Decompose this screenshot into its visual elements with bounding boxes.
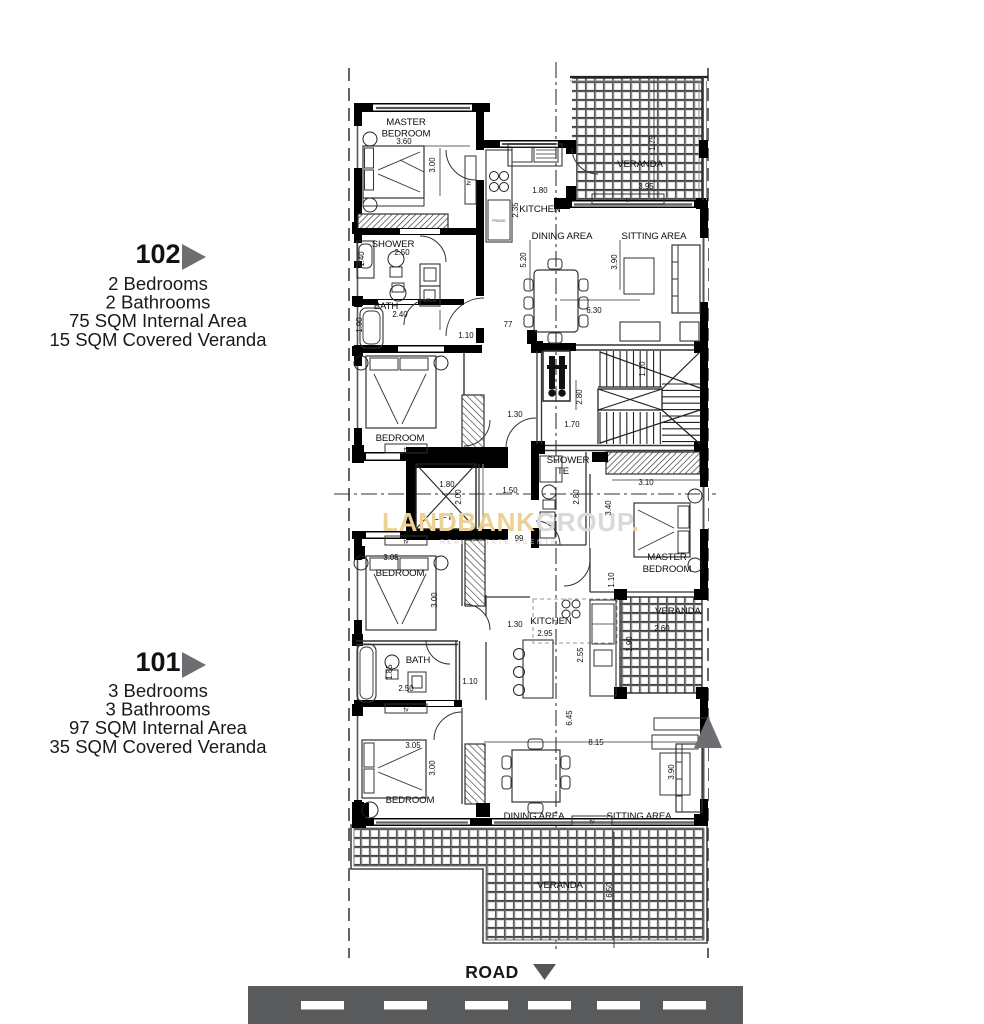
svg-text:BEDROOM: BEDROOM [376, 568, 425, 579]
svg-text:15 SQM Covered Veranda: 15 SQM Covered Veranda [50, 329, 268, 350]
svg-text:BATH: BATH [406, 655, 431, 666]
svg-text:8.15: 8.15 [588, 738, 604, 747]
svg-text:ROAD: ROAD [465, 962, 519, 982]
svg-text:SITTING AREA: SITTING AREA [607, 811, 673, 822]
svg-text:3.05: 3.05 [383, 553, 399, 562]
svg-text:tv: tv [403, 539, 409, 546]
svg-text:1.80: 1.80 [532, 186, 548, 195]
svg-text:1.85: 1.85 [385, 664, 394, 680]
svg-text:VERANDA: VERANDA [617, 159, 663, 170]
svg-text:KITCHEN: KITCHEN [519, 204, 561, 215]
svg-text:BEDROOM: BEDROOM [643, 564, 692, 575]
svg-text:VERANDA: VERANDA [537, 880, 583, 891]
svg-text:5.20: 5.20 [519, 252, 528, 268]
svg-text:1.70: 1.70 [564, 420, 580, 429]
svg-text:1.75: 1.75 [648, 135, 657, 151]
svg-text:2.80: 2.80 [572, 489, 581, 505]
svg-text:BEDROOM: BEDROOM [386, 795, 435, 806]
svg-text:101: 101 [135, 647, 180, 677]
svg-text:1.10: 1.10 [638, 361, 647, 377]
svg-text:6.45: 6.45 [565, 710, 574, 726]
svg-text:35 SQM Covered Veranda: 35 SQM Covered Veranda [50, 736, 268, 757]
svg-text:6.50: 6.50 [605, 882, 614, 898]
svg-text:1.40: 1.40 [357, 251, 366, 267]
svg-text:tv: tv [589, 819, 595, 826]
svg-text:3.00: 3.00 [430, 592, 439, 608]
svg-text:MASTER: MASTER [386, 117, 426, 128]
svg-text:6.30: 6.30 [586, 306, 602, 315]
svg-text:2.00: 2.00 [454, 489, 463, 505]
svg-text:3.90: 3.90 [667, 764, 676, 780]
svg-text:2.55: 2.55 [576, 647, 585, 663]
svg-text:1.80: 1.80 [439, 480, 455, 489]
svg-text:DINING AREA: DINING AREA [504, 811, 565, 822]
svg-text:BEDROOM: BEDROOM [382, 129, 431, 140]
svg-text:KITCHEN: KITCHEN [530, 616, 572, 627]
svg-text:BEDROOM: BEDROOM [376, 433, 425, 444]
svg-text:1.10: 1.10 [607, 572, 616, 588]
svg-text:SHOWER: SHOWER [372, 239, 415, 250]
svg-text:3.10: 3.10 [638, 478, 654, 487]
svg-text:tv: tv [403, 447, 409, 454]
svg-text:MASTER: MASTER [647, 552, 687, 563]
svg-text:DINING AREA: DINING AREA [532, 231, 593, 242]
svg-text:2.60: 2.60 [654, 624, 670, 633]
svg-text:1.90: 1.90 [625, 636, 634, 652]
svg-text:2.50: 2.50 [398, 684, 414, 693]
svg-text:tv: tv [625, 197, 631, 204]
svg-text:102: 102 [135, 239, 180, 269]
svg-text:1.10: 1.10 [462, 677, 478, 686]
svg-text:3.00: 3.00 [428, 760, 437, 776]
svg-text:3.00: 3.00 [428, 157, 437, 173]
svg-text:BATH: BATH [374, 301, 399, 312]
svg-text:FRIDGE: FRIDGE [492, 219, 506, 223]
svg-text:REAL ESTATE AGENTS: REAL ESTATE AGENTS [440, 539, 558, 546]
svg-text:1.10: 1.10 [458, 331, 474, 340]
svg-text:3.90: 3.90 [610, 254, 619, 270]
svg-text:77: 77 [504, 320, 513, 329]
svg-text:VERANDA: VERANDA [655, 606, 701, 617]
svg-text:3.05: 3.05 [405, 741, 421, 750]
svg-text:tv: tv [403, 707, 409, 714]
svg-text:1.50: 1.50 [502, 486, 518, 495]
svg-text:SHOWER: SHOWER [547, 455, 590, 466]
svg-text:1.30: 1.30 [507, 410, 523, 419]
svg-text:1.90: 1.90 [355, 317, 364, 333]
svg-text:1.30: 1.30 [507, 620, 523, 629]
svg-text:LANDBANKGROUP.: LANDBANKGROUP. [382, 507, 640, 537]
svg-text:2.95: 2.95 [537, 629, 553, 638]
svg-text:tv: tv [466, 180, 473, 186]
svg-text:SITTING AREA: SITTING AREA [622, 231, 688, 242]
svg-text:TE: TE [557, 466, 569, 477]
